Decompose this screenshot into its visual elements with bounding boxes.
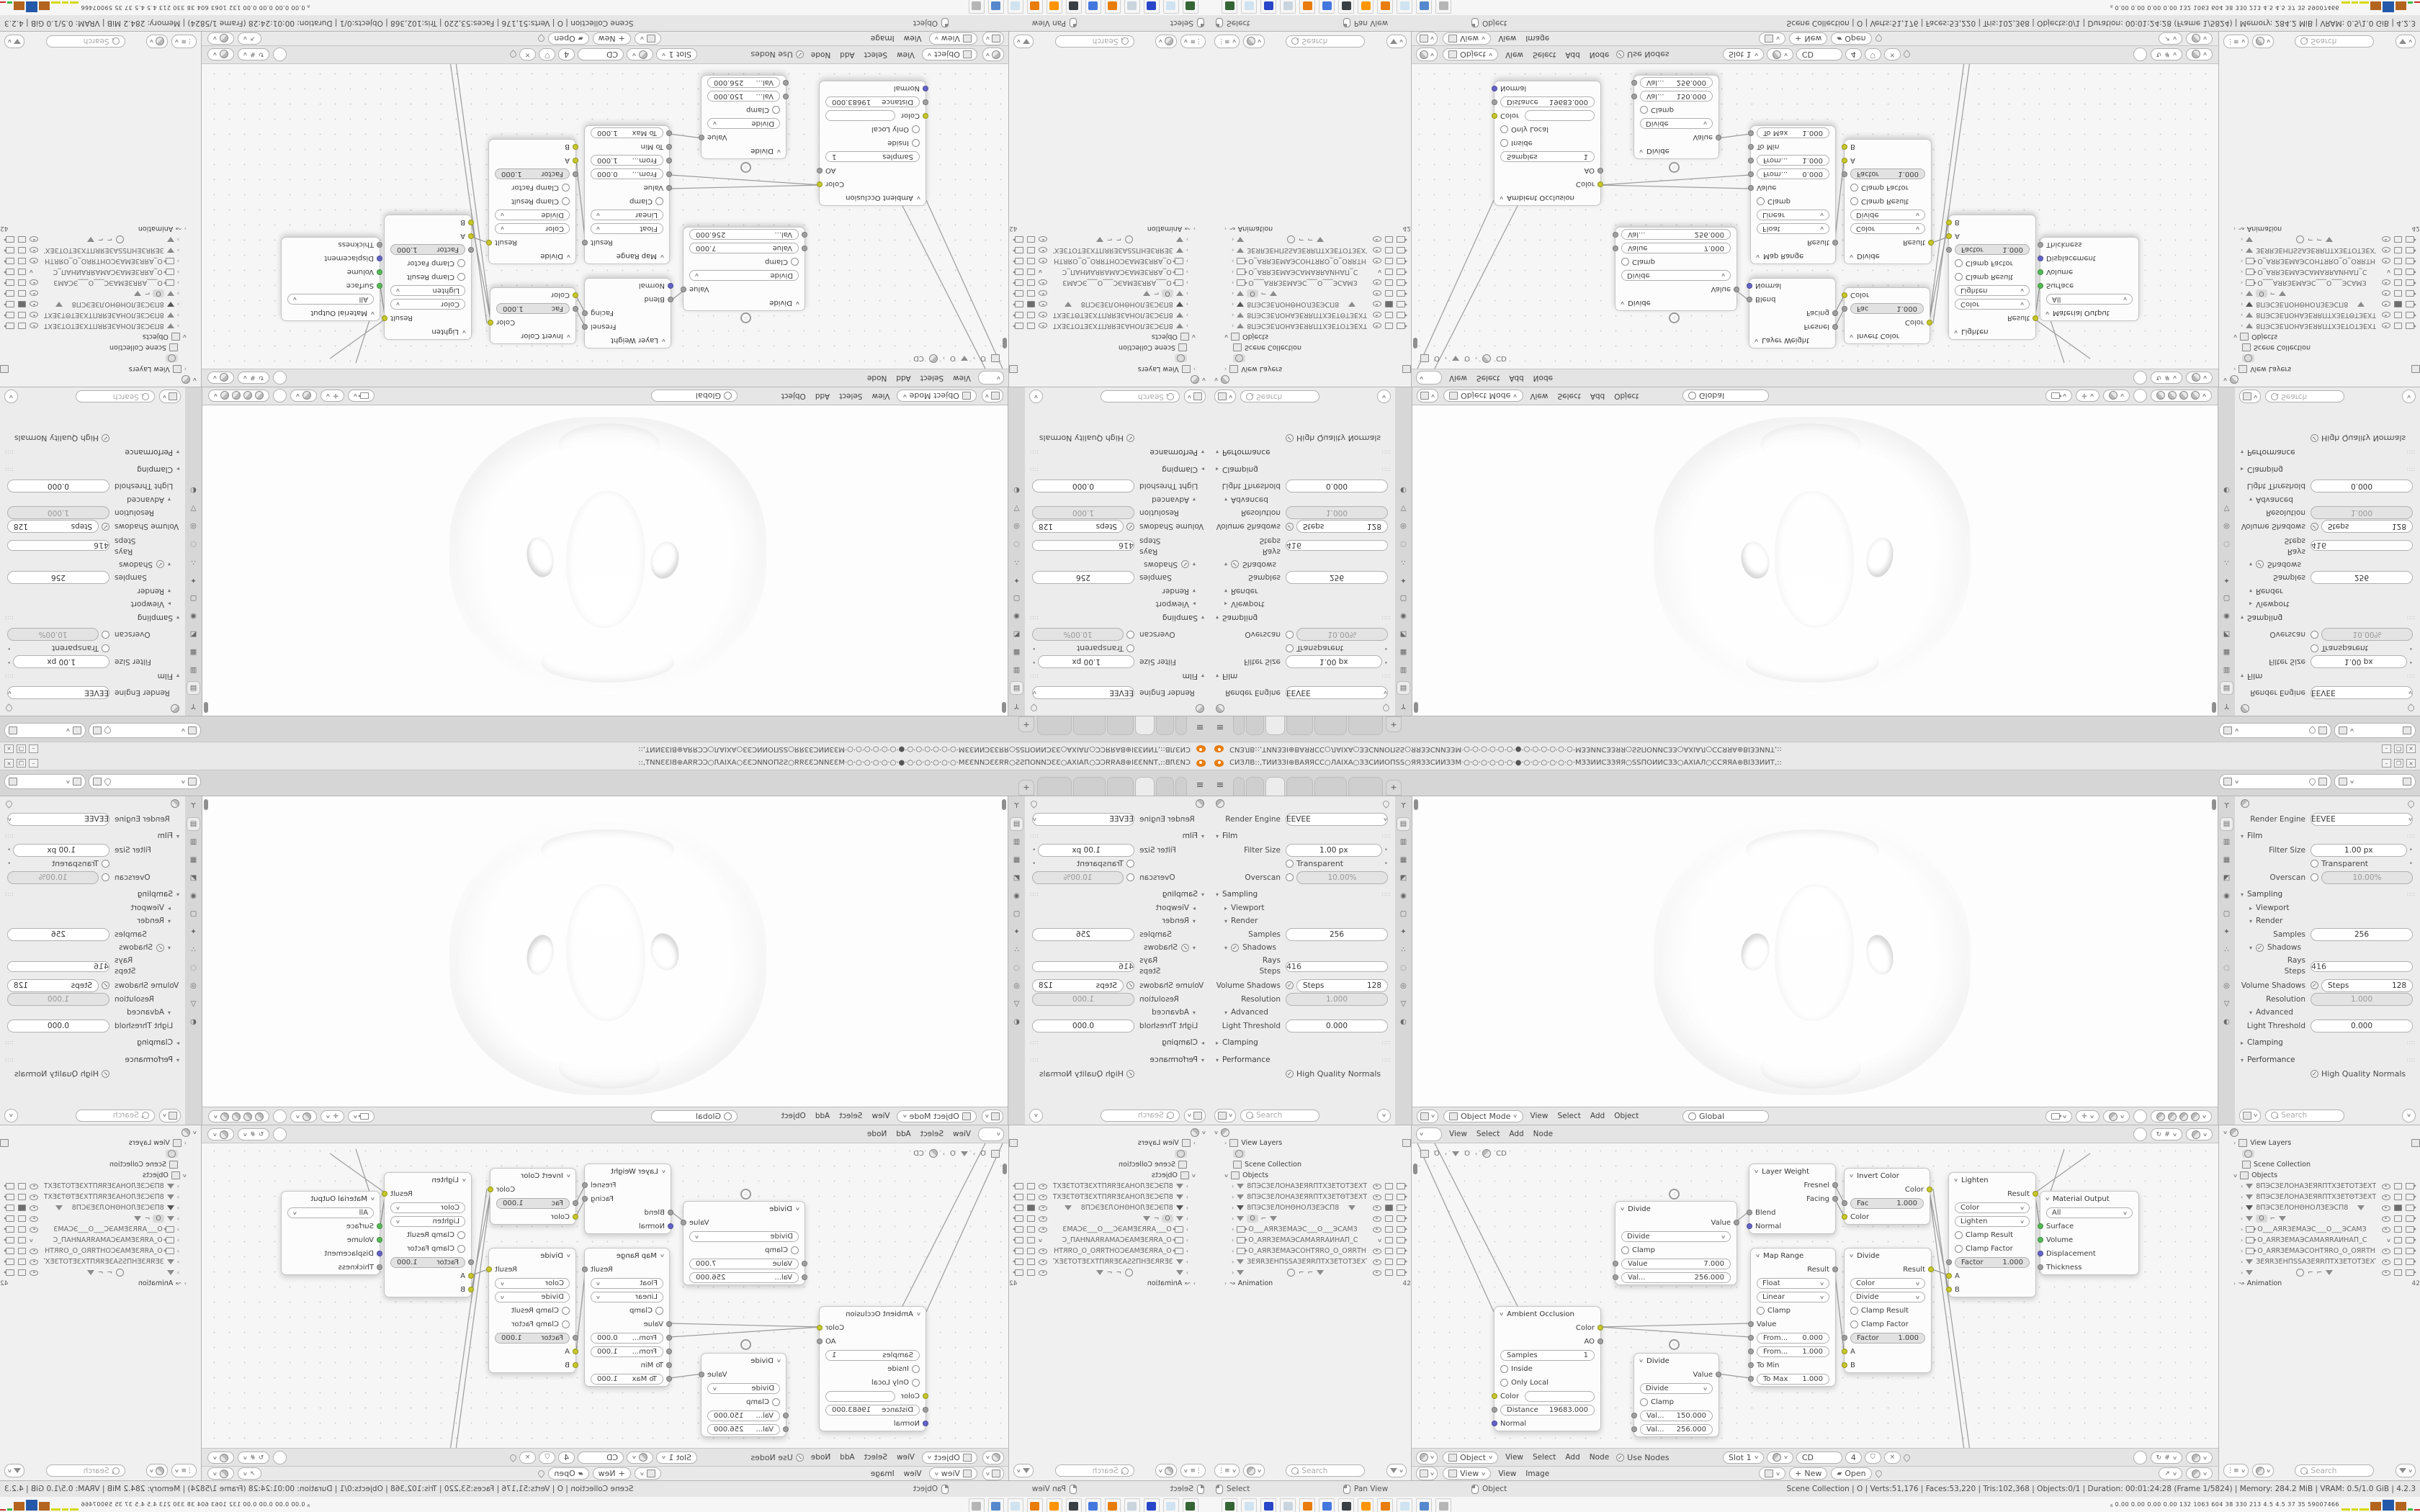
socket-yellow[interactable] <box>573 1214 578 1220</box>
animation-row[interactable]: ›↝Animation42 <box>1210 1278 1411 1289</box>
mode-selector[interactable]: Object Mode∨ <box>897 390 976 402</box>
properties-tab-particles[interactable]: ∴ <box>2220 555 2233 569</box>
material-name-field[interactable]: CD <box>578 49 624 61</box>
region-overlap-pill[interactable] <box>2212 702 2216 713</box>
display-mode-button[interactable]: ⋮≡∨ <box>1180 35 1206 48</box>
checkbox[interactable] <box>102 860 109 868</box>
animation-row[interactable]: ›↝Animation42 <box>2219 1278 2420 1289</box>
node-header[interactable]: ∨Divide <box>1634 144 1718 158</box>
object-row[interactable]: ›8ПЭСЗЕЛОНАЗЕЯRПТХЗЕТОТЗЕХТ <box>1009 1181 1210 1192</box>
node-field[interactable]: Val...256.000 <box>707 1424 780 1435</box>
use-nodes-toggle[interactable]: ✓Use Nodes <box>750 1453 804 1462</box>
subsection-Advanced[interactable]: ▾Advanced <box>1210 1006 1395 1019</box>
socket-gray[interactable] <box>666 1362 672 1368</box>
properties-tab-physics[interactable]: ◌ <box>1010 537 1023 551</box>
checkbox-checked[interactable]: ✓ <box>102 981 109 989</box>
menu-image[interactable]: Image <box>1523 35 1551 43</box>
uv-sync-group[interactable]: ↗∨ <box>2159 32 2182 45</box>
socket-gray[interactable] <box>666 1335 672 1341</box>
workspace-tab[interactable] <box>1156 716 1174 735</box>
prop-field[interactable]: 1.00 px <box>1038 656 1134 669</box>
node-canvas[interactable]: O›O›CD∨DivideValueDivide∨ClampValue7.000… <box>202 1143 1008 1448</box>
node-field[interactable]: Samples1 <box>1500 1350 1595 1361</box>
socket-gray[interactable] <box>1832 1196 1838 1202</box>
node-dropdown[interactable]: Color∨ <box>495 1278 570 1289</box>
object-row[interactable]: ›ЗЕЯRЗЕНПSSАЗЕЯRПТХЗЕТОТЗЕХТ <box>0 1256 201 1267</box>
editor-type-button[interactable]: ∨ <box>1416 48 1438 62</box>
checkbox-checked[interactable]: ✓ <box>1181 561 1189 569</box>
properties-tab-output[interactable]: ▥ <box>1397 835 1410 849</box>
node-header[interactable]: ∨Map Range <box>1751 249 1835 264</box>
overlays-group[interactable]: ∨ <box>207 1467 234 1480</box>
socket-green[interactable] <box>2038 1223 2043 1229</box>
socket-gray[interactable] <box>1492 1407 1497 1413</box>
shading-mode-group[interactable]: ∨ <box>2151 1110 2212 1122</box>
node-dropdown[interactable]: Color∨ <box>1955 299 2030 310</box>
node-dropdown[interactable]: All∨ <box>287 1207 374 1218</box>
collapse-button[interactable]: ∨ <box>1377 1109 1391 1122</box>
checkbox-checked[interactable]: ✓ <box>2256 944 2264 952</box>
object-row[interactable]: ›ЗЕЯRЗЕНПSSАЗЕЯRПТХЗЕТОТЗЕХТ <box>2219 1256 2420 1267</box>
node-divide[interactable]: ∨DivideResultColor∨Divide∨Clamp ResultCl… <box>1844 1248 1932 1373</box>
checkbox[interactable] <box>1286 644 1294 652</box>
taskbar-app-firefox[interactable] <box>1047 1498 1062 1512</box>
properties-tab-constraints[interactable]: ◎ <box>1397 519 1410 533</box>
workspace-tab[interactable] <box>1246 716 1264 735</box>
section-Performance[interactable]: ▾Performance∷∷ <box>1210 1053 1395 1067</box>
new-image-button[interactable]: +New <box>593 32 631 45</box>
properties-tab-tool[interactable]: ϒ <box>2220 799 2233 813</box>
subsection-Shadows[interactable]: ▾✓Shadows <box>0 941 185 954</box>
subsection-Viewport[interactable]: ▸Viewport <box>2235 901 2420 914</box>
display-mode-button[interactable]: ⋮≡∨ <box>171 35 197 48</box>
checkbox[interactable] <box>1286 860 1294 868</box>
globe-row[interactable] <box>1210 353 1411 364</box>
node-dropdown[interactable]: Linear∨ <box>1757 1292 1829 1302</box>
prop-split-field[interactable]: Steps128 <box>1296 979 1388 992</box>
menu-add[interactable]: Add <box>894 374 913 382</box>
editor-type-button[interactable]: ∨ <box>982 1451 1004 1464</box>
taskbar-app-notepad-2[interactable] <box>1008 0 1023 14</box>
properties-tab-modifiers[interactable]: ✦ <box>1010 573 1023 587</box>
socket-gray[interactable] <box>1631 94 1637 99</box>
properties-tab-output[interactable]: ▥ <box>1010 663 1023 677</box>
socket-yellow[interactable] <box>1842 144 1847 150</box>
taskbar-app-blender-2[interactable] <box>1027 0 1043 14</box>
subsection-Shadows[interactable]: ▾✓Shadows <box>1025 558 1210 571</box>
taskbar-app-notepad[interactable] <box>1163 1498 1179 1512</box>
prop-stacked-fields[interactable]: 416 <box>1286 541 1388 552</box>
node-field[interactable]: From...1.000 <box>591 155 663 166</box>
taskbar-app-floppy64[interactable] <box>1260 1498 1276 1512</box>
socket-yellow[interactable] <box>1928 240 1934 246</box>
socket-yellow[interactable] <box>1946 1273 1952 1279</box>
object-row[interactable]: ›⌐⌐ <box>0 1267 201 1278</box>
image-mode-selector[interactable]: View∨ <box>1443 32 1491 45</box>
snap-toggle[interactable] <box>2133 1451 2147 1464</box>
prop-field[interactable]: 0.000 <box>1286 1020 1388 1032</box>
object-row[interactable]: ›8ПЭСЗЕЛОНΘНОЛЗЕЭСП8 <box>1210 1202 1411 1213</box>
snap-toggle[interactable] <box>273 371 287 384</box>
node-header[interactable]: ∨Lighten <box>1949 1173 2035 1187</box>
socket-blue[interactable] <box>1492 86 1497 91</box>
snapping-group[interactable]: ↻#∨ <box>2151 48 2182 60</box>
object-row[interactable]: ›О___АЯRЗЕМАЭС___О___ЭСАМЗ <box>0 1224 201 1235</box>
subsection-Shadows[interactable]: ▾✓Shadows <box>1210 558 1395 571</box>
checkbox[interactable] <box>102 631 109 639</box>
workspace-tab[interactable] <box>1175 777 1187 796</box>
display-mode-button[interactable]: ⋮≡∨ <box>2223 1464 2249 1477</box>
slot-selector[interactable]: Slot 1∨ <box>1723 49 1764 61</box>
node-field[interactable]: Factor1.000 <box>1955 244 2030 255</box>
properties-tab-view-layer[interactable]: ▦ <box>187 853 200 867</box>
properties-tab-scene[interactable]: ◩ <box>2220 627 2233 641</box>
node-field[interactable]: Factor1.000 <box>1955 1257 2030 1268</box>
node-field[interactable]: Value7.000 <box>689 1259 799 1269</box>
material-name-field[interactable]: CD <box>1796 1452 1842 1464</box>
object-row[interactable]: ›О_АЯRЗЕМАЭСАМАЯRАИНАП_С∨ <box>1210 1235 1411 1246</box>
section-Performance[interactable]: ▾Performance∷∷ <box>0 445 185 459</box>
workspace-tab[interactable] <box>1286 716 1313 735</box>
keyframe-dot[interactable]: • <box>1384 659 1388 666</box>
node-dropdown[interactable]: Linear∨ <box>1757 210 1829 220</box>
reroute-dot[interactable] <box>740 312 751 323</box>
menu-view[interactable]: View <box>1528 1112 1551 1120</box>
object-row[interactable]: ›ЗЕЯRЗЕНПSSАЗЕЯRПТХЗЕТОТЗЕХТ <box>2219 245 2420 256</box>
section-Sampling[interactable]: ▾Sampling∷∷ <box>2235 887 2420 901</box>
region-overlap-pill[interactable] <box>1414 799 1418 810</box>
properties-tab-object-data[interactable]: ▽ <box>2220 501 2233 515</box>
object-row[interactable]: ›8ПЭСЗЕЛОНАЗЕЯRПТХЗЕТОТЗЕХТ <box>2219 1181 2420 1192</box>
section-Sampling[interactable]: ▾Sampling∷∷ <box>2235 611 2420 625</box>
taskbar-app-blender-2[interactable] <box>1377 0 1393 14</box>
socket-gray[interactable] <box>468 247 474 253</box>
taskbar-app-notepad-2[interactable] <box>1397 0 1412 14</box>
prop-field[interactable]: 0.000 <box>7 480 109 493</box>
minimize-button[interactable]: – <box>29 759 38 768</box>
properties-tab-particles[interactable]: ∴ <box>187 943 200 957</box>
object-row[interactable]: ›О___АЯRЗЕМАЭС___О___ЭСАМЗ <box>1210 277 1411 288</box>
properties-tab-particles[interactable]: ∴ <box>1397 555 1410 569</box>
node-dropdown[interactable]: Divide∨ <box>1621 1231 1731 1242</box>
node-dropdown[interactable]: All∨ <box>2046 294 2133 305</box>
node-dropdown[interactable]: Divide∨ <box>495 1292 570 1302</box>
taskbar-app-gimp[interactable] <box>969 1498 985 1512</box>
menu-add[interactable]: Add <box>838 50 856 59</box>
xray-toggle[interactable] <box>273 389 287 402</box>
taskbar-app-calculator[interactable] <box>1124 0 1140 14</box>
checkbox[interactable] <box>457 259 465 267</box>
checkbox[interactable] <box>1621 258 1629 266</box>
checkbox-checked[interactable]: ✓ <box>102 523 109 531</box>
socket-yellow[interactable] <box>1927 320 1932 325</box>
objects-row[interactable]: ∨Objects <box>2219 1170 2420 1181</box>
node-material-output[interactable]: ∨Material OutputAll∨SurfaceVolumeDisplac… <box>281 1191 380 1275</box>
socket-blue[interactable] <box>2038 256 2043 261</box>
taskbar-app-monitor[interactable] <box>1338 1498 1354 1512</box>
subsection-Advanced[interactable]: ▾Advanced <box>1210 493 1395 506</box>
checkbox[interactable] <box>1500 1379 1508 1387</box>
workspace-tab[interactable] <box>1135 777 1155 796</box>
filter-button[interactable]: ∨ <box>2396 1464 2416 1477</box>
properties-tab-modifiers[interactable]: ✦ <box>1010 925 1023 939</box>
camera-view-button[interactable]: ∨ <box>2045 1110 2072 1122</box>
reroute-dot[interactable] <box>1669 1339 1680 1350</box>
scene-collection-row[interactable]: Scene Collection <box>1009 1159 1210 1170</box>
menu-add[interactable]: Add <box>1588 1112 1607 1120</box>
view-layers-row[interactable]: ›View Layers <box>1210 364 1411 374</box>
socket-yellow[interactable] <box>573 1362 578 1368</box>
node-dropdown[interactable]: Float∨ <box>591 223 663 234</box>
view-layers-row[interactable]: ›View Layers <box>2219 1138 2420 1148</box>
checkbox[interactable] <box>1955 273 1963 281</box>
node-field[interactable]: Val...150.000 <box>1640 91 1713 102</box>
image-mode-selector[interactable]: View∨ <box>1443 1467 1491 1480</box>
properties-tab-scene[interactable]: ◩ <box>187 871 200 885</box>
socket-gray[interactable] <box>1597 168 1603 174</box>
keyframe-dot[interactable]: • <box>1384 860 1388 868</box>
checkbox[interactable] <box>457 1231 465 1239</box>
editor-type-button[interactable]: ∨ <box>1417 390 1438 403</box>
editor-type-button[interactable]: ∨ <box>1184 1109 1206 1122</box>
region-overlap-pill[interactable] <box>204 799 208 810</box>
properties-tab-tool[interactable]: ϒ <box>187 799 200 813</box>
socket-green[interactable] <box>2038 269 2043 275</box>
gizmo-button[interactable]: ✛∨ <box>321 390 344 402</box>
taskbar-app-notepad-2[interactable] <box>1397 1498 1412 1512</box>
filter-button[interactable]: ∨ <box>2396 35 2416 48</box>
node-layer-weight[interactable]: ∨Layer WeightFresnelFacingBlendNormal <box>1749 278 1836 348</box>
prop-split-field[interactable]: Steps128 <box>2321 979 2413 992</box>
taskbar-app-calculator[interactable] <box>1124 1498 1140 1512</box>
node-field[interactable]: From...1.000 <box>1757 155 1829 166</box>
node-header[interactable]: ∨Material Output <box>2040 306 2138 320</box>
properties-tab-physics[interactable]: ◌ <box>1397 961 1410 975</box>
image-browse-button[interactable]: ∨ <box>635 32 661 45</box>
socket-yellow[interactable] <box>1946 233 1952 239</box>
socket-gray[interactable] <box>1747 297 1752 302</box>
object-row[interactable]: ›О_АЯRЗЕМАЭСАМАЯRАИНАП_С∨ <box>2219 1235 2420 1246</box>
properties-tab-scene[interactable]: ◩ <box>1397 871 1410 885</box>
object-row[interactable]: ›8ПЭСЗЕЛОНΘНОЛЗЕЭСП8 <box>1009 299 1210 310</box>
menu-image[interactable]: Image <box>1523 1470 1551 1478</box>
taskbar-app-gimp[interactable] <box>1435 0 1451 14</box>
properties-tab-material[interactable]: ◐ <box>1010 1015 1023 1029</box>
subsection-Advanced[interactable]: ▾Advanced <box>0 1006 185 1019</box>
workspace-tab[interactable] <box>1073 777 1106 796</box>
objects-row[interactable]: ∨Objects <box>1009 331 1210 342</box>
workspace-tab[interactable] <box>1286 777 1313 796</box>
node-field[interactable]: From...0.000 <box>591 168 663 179</box>
unlink-button[interactable]: × <box>519 49 537 61</box>
object-row[interactable]: ›⌐⌐ <box>0 234 201 245</box>
properties-tab-constraints[interactable]: ◎ <box>187 519 200 533</box>
socket-gray[interactable] <box>681 1220 686 1225</box>
socket-green[interactable] <box>377 1223 382 1229</box>
checkbox[interactable] <box>912 1365 920 1373</box>
image-mode-selector[interactable]: View∨ <box>929 1467 977 1480</box>
prop-field[interactable]: 256 <box>2311 928 2413 941</box>
node-header[interactable]: ∨Divide <box>489 1248 575 1263</box>
checkbox[interactable] <box>1500 139 1508 147</box>
prop-split-field[interactable]: Steps128 <box>1032 521 1124 534</box>
taskbar-app-vm[interactable] <box>1183 1498 1198 1512</box>
filter-mode-button[interactable]: ∨ <box>1155 1464 1177 1477</box>
menu-view[interactable]: View <box>1447 1130 1469 1138</box>
unlink-button[interactable]: × <box>519 1452 537 1464</box>
socket-gray[interactable] <box>1747 1210 1752 1215</box>
checkbox-checked[interactable]: ✓ <box>2311 523 2318 531</box>
node-header[interactable]: ∨Layer Weight <box>585 1164 671 1179</box>
properties-tab-modifiers[interactable]: ✦ <box>187 925 200 939</box>
node-invert-color[interactable]: ∨Invert ColorColorFac1.000Color <box>490 287 576 344</box>
properties-tab-material[interactable]: ◐ <box>2220 1015 2233 1029</box>
section-Sampling[interactable]: ▾Sampling∷∷ <box>1025 887 1210 901</box>
use-nodes-toggle[interactable]: ✓Use Nodes <box>1616 1453 1670 1462</box>
node-divide[interactable]: ∨DivideValueDivide∨ClampValue7.000Val...… <box>683 227 805 311</box>
open-image-button[interactable]: ▰Open <box>548 32 588 45</box>
menu-select[interactable]: Select <box>862 50 889 59</box>
socket-gray[interactable] <box>377 242 382 248</box>
object-row[interactable]: ›8ПЭСЗЕЛОНΘНОЛЗЕЭСП8 <box>2219 1202 2420 1213</box>
xray-toggle[interactable] <box>2133 389 2147 402</box>
socket-gray[interactable] <box>1734 287 1739 292</box>
properties-tab-physics[interactable]: ◌ <box>1397 537 1410 551</box>
section-Sampling[interactable]: ▾Sampling∷∷ <box>1210 887 1395 901</box>
subsection-Advanced[interactable]: ▾Advanced <box>0 493 185 506</box>
section-Clamping[interactable]: ▸Clamping∷∷ <box>1210 1035 1395 1050</box>
uv-sync-group[interactable]: ↗∨ <box>238 32 261 45</box>
taskbar-app-firefox[interactable] <box>1358 0 1373 14</box>
socket-gray[interactable] <box>573 1200 578 1206</box>
socket-gray[interactable] <box>923 99 928 105</box>
menu-select[interactable]: Select <box>837 1112 864 1120</box>
overlays-button[interactable]: ∨ <box>2103 1110 2130 1122</box>
checkbox[interactable] <box>1621 1246 1629 1254</box>
socket-gray[interactable] <box>1748 1349 1754 1354</box>
scene-selector[interactable]: ∨ <box>2219 774 2331 789</box>
workspace-tab[interactable] <box>1175 716 1187 735</box>
socket-gray[interactable] <box>1832 310 1838 316</box>
scene-collection-row[interactable]: Scene Collection <box>2219 342 2420 353</box>
fake-user-button[interactable]: ⛉ <box>1865 1452 1881 1464</box>
unlink-button[interactable]: × <box>1884 49 1901 61</box>
properties-tab-particles[interactable]: ∴ <box>2220 943 2233 957</box>
node-dropdown[interactable]: Color∨ <box>390 1202 465 1213</box>
node-dropdown[interactable]: All∨ <box>2046 1207 2133 1218</box>
gizmo-button[interactable]: ✛∨ <box>2076 390 2099 402</box>
properties-tab-material[interactable]: ◐ <box>187 483 200 497</box>
image-browse-button[interactable]: ∨ <box>1759 32 1785 45</box>
overlays-button[interactable]: ∨ <box>290 390 317 402</box>
editor-type-button[interactable]: ∨ <box>1416 372 1442 385</box>
section-Performance[interactable]: ▾Performance∷∷ <box>1025 1053 1210 1067</box>
checkbox-checked[interactable]: ✓ <box>1126 434 1134 442</box>
node-field[interactable]: Fac1.000 <box>1850 1198 1924 1209</box>
object-row[interactable]: ›⌐⌐ <box>1210 1267 1411 1278</box>
scene-selector[interactable]: ∨ <box>2219 723 2331 738</box>
object-row[interactable]: ›8ПЭСЗЕЛОНАЗЕЯRПТХЗЕТΘТЗЕХТ <box>1009 310 1210 320</box>
socket-yellow[interactable] <box>1842 1362 1847 1368</box>
socket-gray[interactable] <box>1832 1182 1838 1188</box>
overlays-group[interactable]: ∨ <box>2186 1452 2213 1464</box>
filter-mode-button[interactable]: ∨ <box>1155 35 1177 48</box>
socket-gray[interactable] <box>1631 1426 1637 1432</box>
keyframe-dot[interactable]: • <box>2409 860 2413 868</box>
object-row[interactable]: ›O⌐ <box>0 1213 201 1224</box>
menu-image[interactable]: Image <box>869 1470 897 1478</box>
socket-blue[interactable] <box>923 86 928 91</box>
prop-select[interactable]: EEVEE∨ <box>1032 813 1134 826</box>
animation-row[interactable]: ›↝Animation42 <box>0 1278 201 1289</box>
subsection-Viewport[interactable]: ▸Viewport <box>0 901 185 914</box>
object-row[interactable]: ›О_АЯRЗЕМАЭСОНТЯRО_О_ОЯRТН <box>0 256 201 266</box>
collapse-button[interactable]: ∨ <box>2402 390 2416 404</box>
properties-tab-render[interactable]: ▤ <box>1010 817 1023 831</box>
node-header[interactable]: ∨Map Range <box>585 1248 669 1263</box>
socket-gray[interactable] <box>1613 1274 1618 1280</box>
subsection-Advanced[interactable]: ▾Advanced <box>1025 493 1210 506</box>
globe-row[interactable] <box>0 353 201 364</box>
checkbox[interactable] <box>791 1246 799 1254</box>
socket-gray[interactable] <box>1716 135 1721 140</box>
socket-gray[interactable] <box>681 287 686 292</box>
menu-select[interactable]: Select <box>918 374 946 382</box>
menu-select[interactable]: Select <box>1474 374 1502 382</box>
properties-tab-tool[interactable]: ϒ <box>1010 699 1023 713</box>
properties-tab-scene[interactable]: ◩ <box>1397 627 1410 641</box>
section-Film[interactable]: ▾Film∷∷ <box>2235 829 2420 843</box>
menu-select[interactable]: Select <box>837 392 864 400</box>
reroute-dot[interactable] <box>740 162 751 173</box>
properties-tab-modifiers[interactable]: ✦ <box>2220 573 2233 587</box>
prop-select[interactable]: EEVEE∨ <box>7 687 109 700</box>
outliner-search-input[interactable]: Search <box>1055 1464 1134 1477</box>
mode-selector[interactable]: Object Mode∨ <box>897 1110 976 1122</box>
object-row[interactable]: ›⌐⌐ <box>1210 234 1411 245</box>
checkbox[interactable] <box>1955 1245 1963 1253</box>
keyframe-dot[interactable]: • <box>7 645 11 652</box>
object-row[interactable]: ›⌐⌐ <box>1009 234 1210 245</box>
menu-view[interactable]: View <box>1496 1470 1518 1478</box>
properties-tab-physics[interactable]: ◌ <box>1010 961 1023 975</box>
mesh-object[interactable] <box>1654 818 1971 1095</box>
overlays-group[interactable]: ∨ <box>2186 32 2213 45</box>
node-field[interactable]: From...1.000 <box>591 1346 663 1357</box>
search-input[interactable]: Search <box>76 391 155 403</box>
snapping-group[interactable]: ↻#∨ <box>2151 372 2182 384</box>
socket-yellow[interactable] <box>573 144 578 150</box>
camera-view-button[interactable]: ∨ <box>348 390 375 402</box>
orientation-selector[interactable]: Global <box>651 1110 738 1122</box>
node-field[interactable]: To Max1.000 <box>591 1374 663 1385</box>
material-users-count[interactable]: 4 <box>1845 1452 1862 1464</box>
node-dropdown[interactable]: Lighten∨ <box>390 1216 465 1227</box>
prop-split-field[interactable]: Steps128 <box>7 979 99 992</box>
maximize-button[interactable]: ❒ <box>17 745 26 754</box>
socket-gray[interactable] <box>1748 1321 1754 1327</box>
node-dropdown[interactable]: Divide∨ <box>495 210 570 220</box>
node-header[interactable]: ∨Invert Color <box>490 329 575 343</box>
properties-tab-tool[interactable]: ϒ <box>2220 699 2233 713</box>
section-Performance[interactable]: ▾Performance∷∷ <box>1025 445 1210 459</box>
taskbar-app-gimp[interactable] <box>1435 1498 1451 1512</box>
add-workspace-button[interactable]: + <box>1018 716 1034 732</box>
node-lighten[interactable]: ∨LightenResultColor∨Lighten∨Clamp Result… <box>384 1172 472 1297</box>
checkbox[interactable] <box>772 1398 780 1406</box>
node-field[interactable]: Factor1.000 <box>1850 168 1925 179</box>
keyframe-dot[interactable]: • <box>1032 645 1036 652</box>
